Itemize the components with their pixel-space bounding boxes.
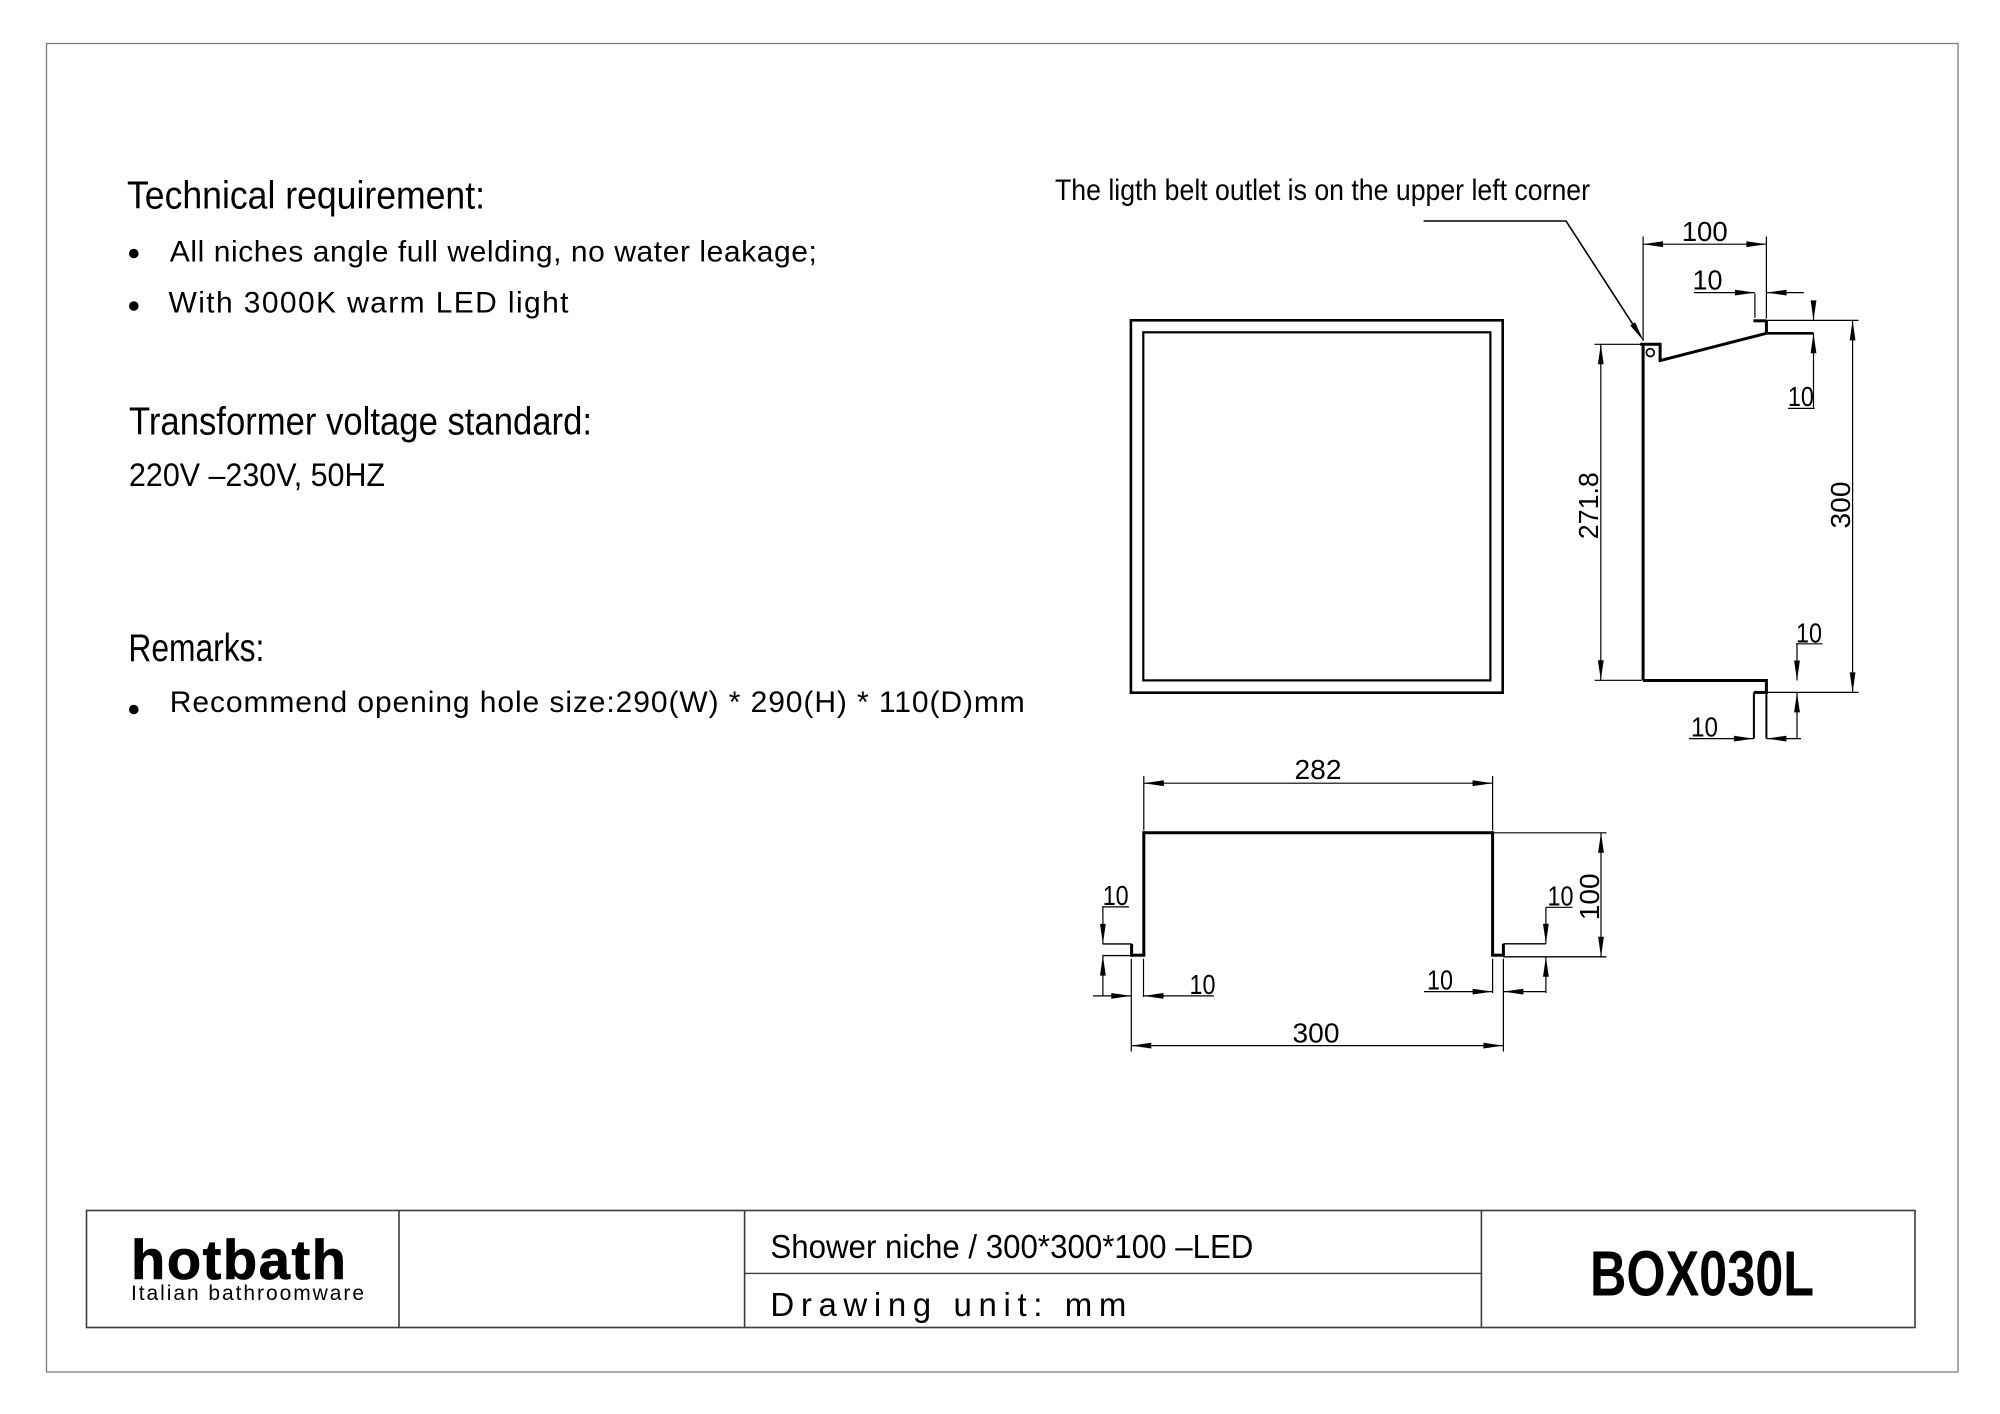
svg-text:With 3000K warm LED light: With 3000K warm LED light bbox=[169, 286, 570, 319]
svg-text:271.8: 271.8 bbox=[1573, 472, 1604, 539]
svg-text:10: 10 bbox=[1788, 381, 1814, 412]
svg-text:Drawing unit: mm: Drawing unit: mm bbox=[770, 1286, 1126, 1323]
svg-text:Technical requirement:: Technical requirement: bbox=[127, 175, 485, 218]
svg-text:Transformer voltage standard:: Transformer voltage standard: bbox=[129, 401, 592, 444]
svg-text:282: 282 bbox=[1295, 754, 1342, 785]
svg-text:220V –230V, 50HZ: 220V –230V, 50HZ bbox=[129, 457, 385, 493]
svg-text:Italian bathroomware: Italian bathroomware bbox=[131, 1282, 364, 1305]
svg-text:BOX030L: BOX030L bbox=[1590, 1238, 1814, 1310]
svg-text:10: 10 bbox=[1427, 965, 1453, 996]
svg-text:Shower niche / 300*300*100 –LE: Shower niche / 300*300*100 –LED bbox=[770, 1228, 1253, 1265]
svg-text:300: 300 bbox=[1293, 1018, 1340, 1049]
svg-text:100: 100 bbox=[1574, 873, 1605, 920]
svg-text:10: 10 bbox=[1190, 969, 1216, 1000]
svg-text:10: 10 bbox=[1693, 265, 1723, 296]
svg-text:100: 100 bbox=[1682, 216, 1728, 247]
svg-text:Remarks:: Remarks: bbox=[128, 627, 264, 670]
svg-text:10: 10 bbox=[1691, 712, 1718, 743]
svg-text:Recommend opening hole size:2: Recommend opening hole size:290(W) * 290… bbox=[170, 686, 1025, 719]
svg-text:The ligth belt outlet is on th: The ligth belt outlet is on the upper le… bbox=[1055, 174, 1590, 207]
svg-text:All niches angle full welding,: All niches angle full welding, no water … bbox=[170, 236, 817, 269]
svg-text:300: 300 bbox=[1825, 482, 1856, 529]
